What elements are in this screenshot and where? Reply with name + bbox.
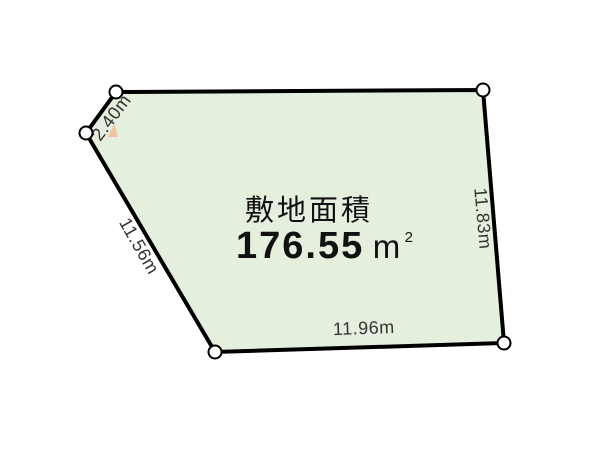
vertex-marker-bottom-left — [209, 346, 222, 359]
vertex-marker-left — [80, 127, 93, 140]
area-unit-m: m — [373, 228, 401, 265]
vertex-marker-top-right — [477, 84, 490, 97]
vertex-marker-top-left — [110, 86, 123, 99]
area-value-number: 176.55 — [236, 225, 364, 267]
area-unit-exponent: 2 — [405, 229, 413, 246]
area-value-text: 176.55 m 2 — [236, 225, 413, 267]
vertex-marker-bottom-right — [498, 337, 511, 350]
parcel-svg: 2.40m 11.56m 11.83m 11.96m 敷地面積 176.55 m… — [0, 0, 600, 449]
land-plot-diagram: 2.40m 11.56m 11.83m 11.96m 敷地面積 176.55 m… — [0, 0, 600, 449]
dimension-label-bottom-edge: 11.96m — [333, 317, 395, 339]
area-title-label: 敷地面積 — [245, 194, 373, 227]
